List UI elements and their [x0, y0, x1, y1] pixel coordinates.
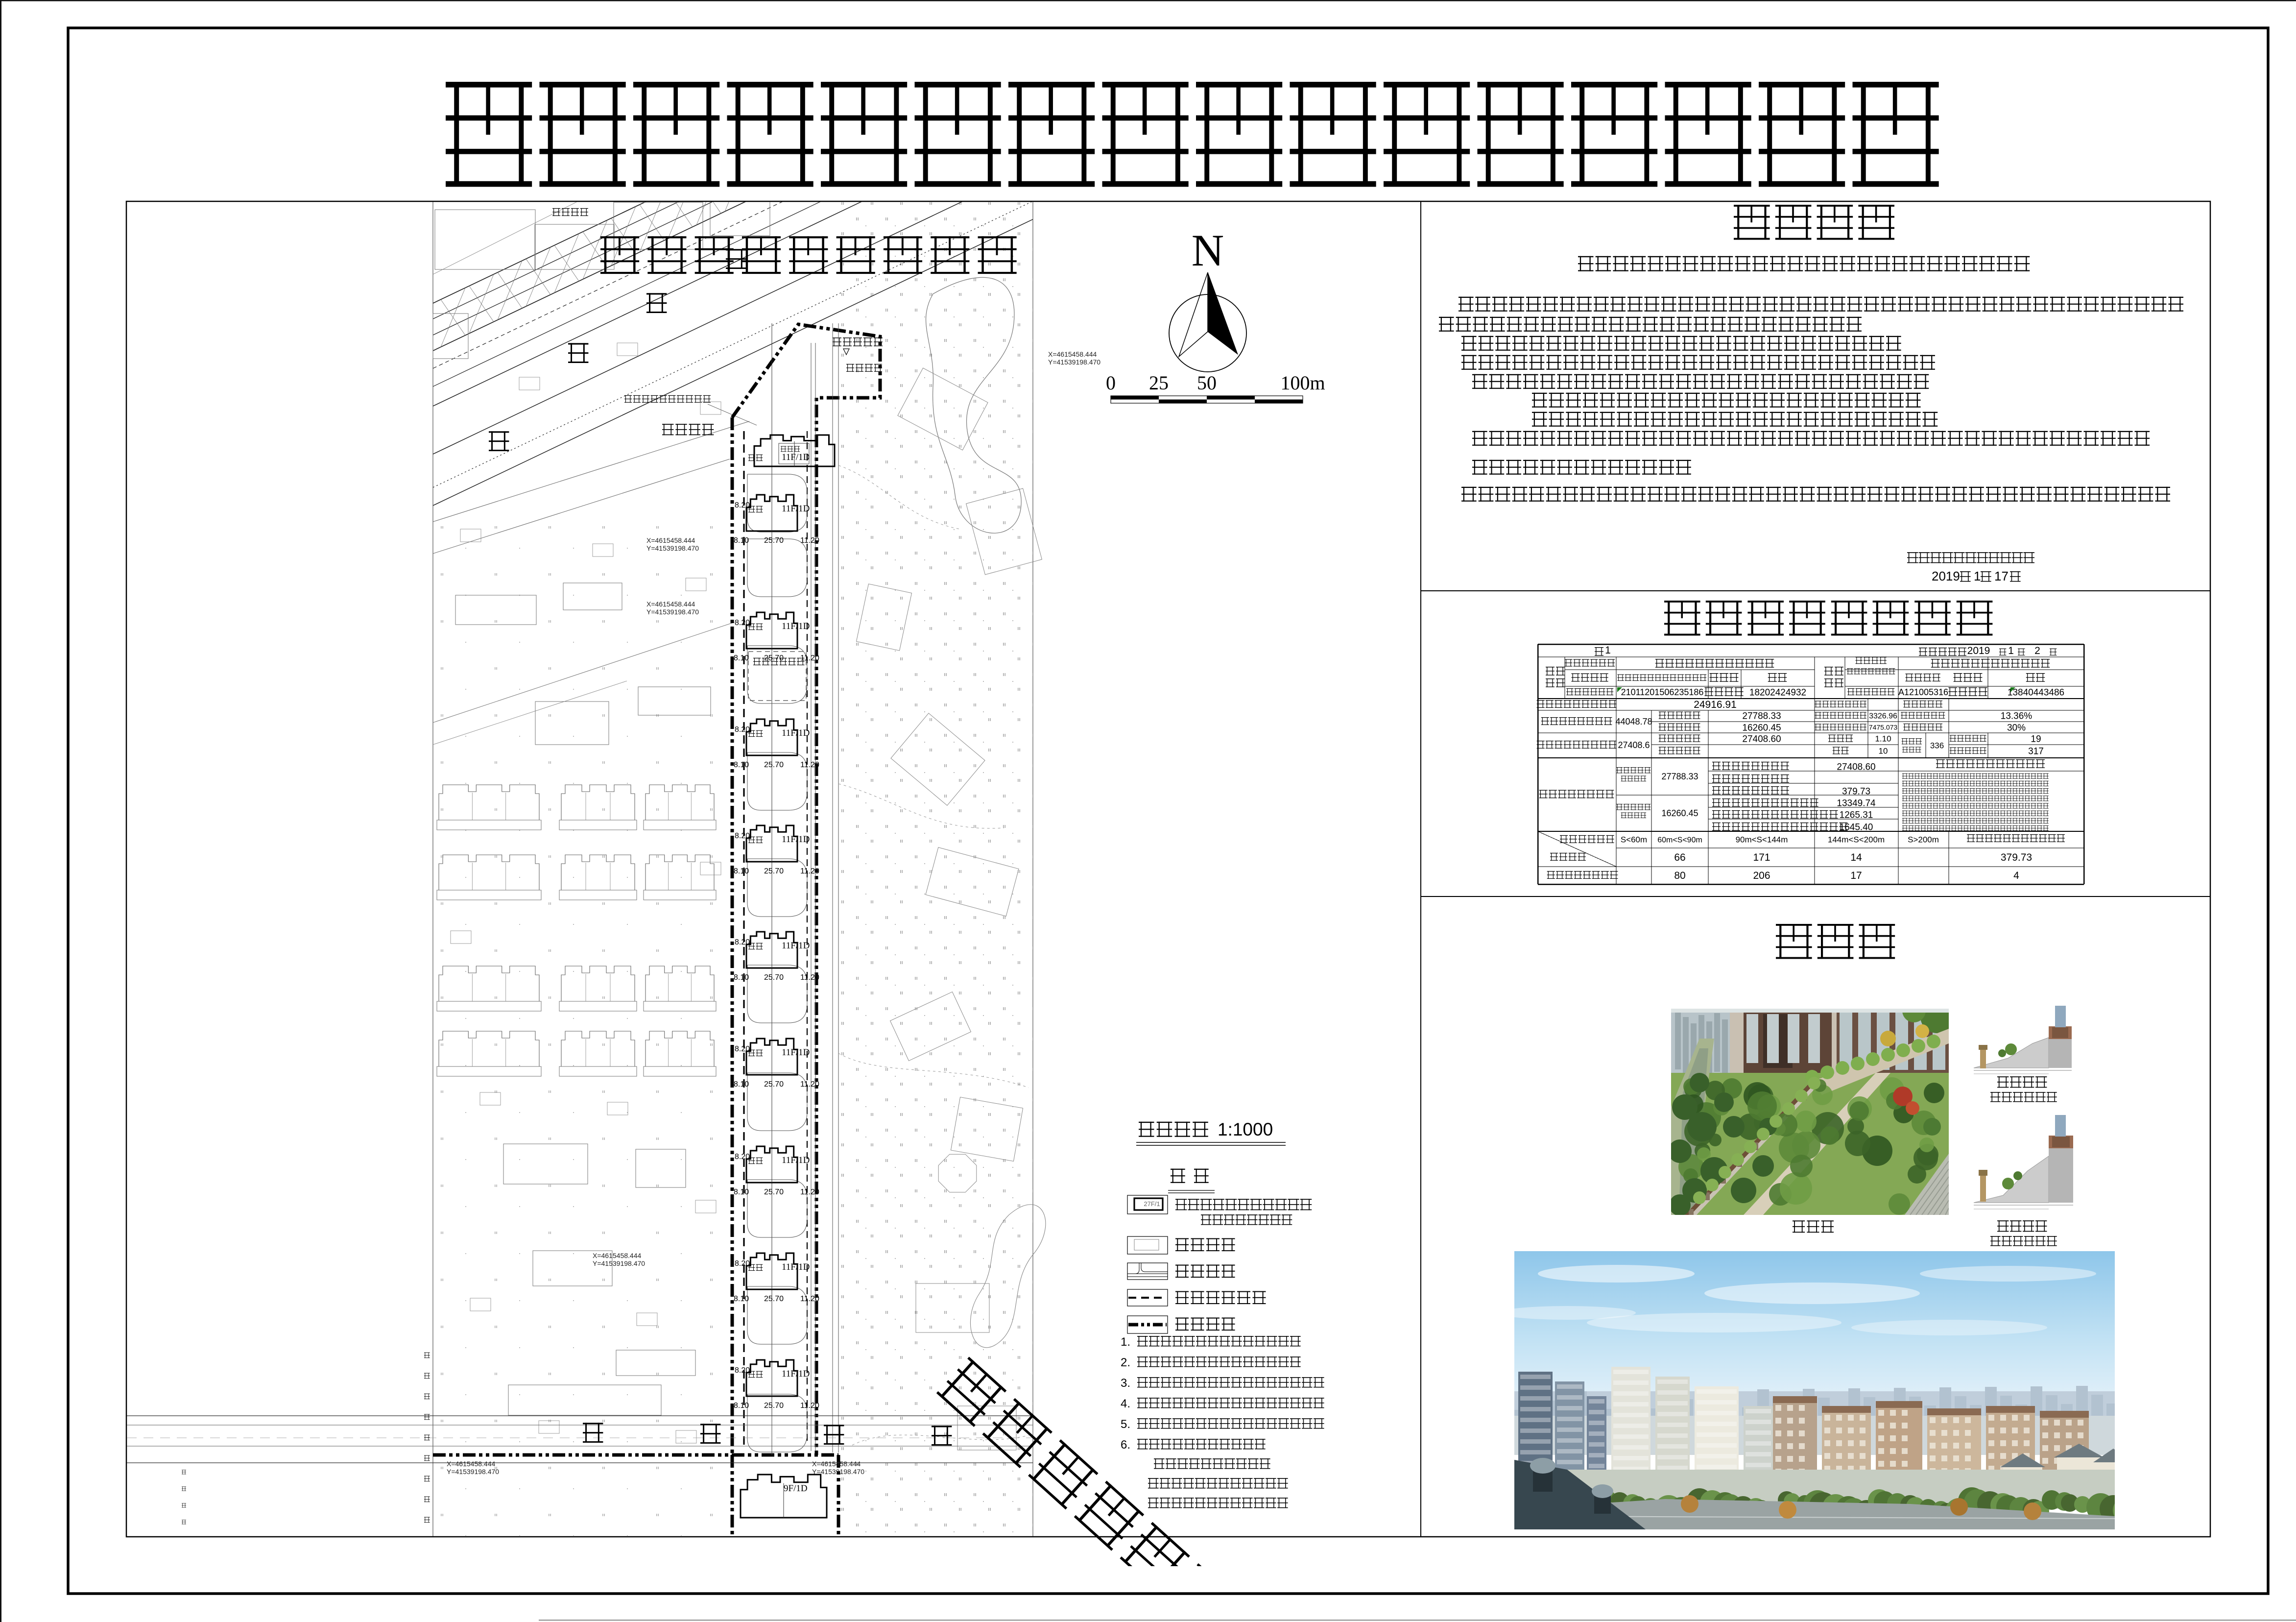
svg-text:A121005316: A121005316 [1898, 687, 1948, 697]
svg-text:44048.78: 44048.78 [1615, 717, 1652, 726]
svg-text:27408.60: 27408.60 [1742, 734, 1781, 744]
svg-text:3.: 3. [1121, 1377, 1130, 1390]
svg-text:336: 336 [1930, 741, 1944, 750]
svg-text:25.70: 25.70 [764, 867, 784, 875]
svg-text:11F/1D: 11F/1D [782, 1262, 810, 1272]
svg-text:66: 66 [1674, 852, 1685, 863]
svg-text:11.20: 11.20 [800, 1080, 819, 1089]
svg-text:25.70: 25.70 [764, 1402, 784, 1410]
svg-text:2: 2 [2034, 645, 2040, 656]
svg-text:16260.45: 16260.45 [1661, 808, 1698, 818]
svg-text:30%: 30% [2007, 723, 2026, 733]
svg-text:8.10: 8.10 [734, 1402, 749, 1410]
svg-text:7475.073: 7475.073 [1869, 724, 1898, 731]
svg-text:11F/1D: 11F/1D [782, 452, 810, 462]
svg-text:25.70: 25.70 [764, 654, 784, 662]
svg-text:8.10: 8.10 [734, 654, 749, 662]
svg-text:100m: 100m [1280, 372, 1325, 394]
svg-text:8.10: 8.10 [734, 1188, 749, 1196]
svg-text:8.20: 8.20 [735, 1366, 750, 1375]
svg-text:9F/1D: 9F/1D [784, 1483, 808, 1494]
svg-text:90m<S<144m: 90m<S<144m [1736, 835, 1788, 845]
svg-text:4.: 4. [1121, 1397, 1130, 1410]
svg-text:Y=41539198.470: Y=41539198.470 [1048, 358, 1100, 366]
svg-text:13.36%: 13.36% [2001, 711, 2033, 721]
svg-text:25.70: 25.70 [764, 536, 784, 545]
svg-text:14: 14 [1850, 852, 1862, 863]
svg-text:27408.6: 27408.6 [1618, 740, 1650, 750]
svg-text:3326.96: 3326.96 [1869, 712, 1897, 720]
svg-text:11F/1D: 11F/1D [782, 1047, 810, 1058]
svg-text:80: 80 [1674, 870, 1685, 881]
svg-text:8.10: 8.10 [734, 1080, 749, 1089]
svg-text:8.20: 8.20 [735, 1045, 750, 1053]
svg-text:8.20: 8.20 [735, 938, 750, 946]
svg-text:1.: 1. [1121, 1335, 1130, 1349]
svg-text:X=4615458.444: X=4615458.444 [593, 1252, 641, 1259]
svg-text:Y=41539198.470: Y=41539198.470 [593, 1259, 645, 1267]
svg-text:21011201506235186: 21011201506235186 [1621, 687, 1704, 697]
svg-text:10: 10 [1879, 747, 1888, 756]
svg-text:25.70: 25.70 [764, 973, 784, 982]
svg-text:11.20: 11.20 [800, 1188, 819, 1196]
svg-text:8.10: 8.10 [734, 867, 749, 875]
svg-text:6.: 6. [1121, 1438, 1130, 1452]
svg-text:13349.74: 13349.74 [1837, 798, 1876, 808]
svg-text:5.: 5. [1121, 1418, 1130, 1431]
svg-text:11F/1D: 11F/1D [782, 1155, 810, 1165]
svg-text:171: 171 [1753, 852, 1770, 863]
svg-text:11.20: 11.20 [800, 761, 819, 769]
svg-text:2019: 2019 [1967, 645, 1990, 656]
svg-text:S<60m: S<60m [1621, 835, 1647, 845]
svg-text:25: 25 [1149, 372, 1169, 394]
svg-text:11F/1D: 11F/1D [782, 834, 810, 845]
svg-text:8.20: 8.20 [735, 619, 750, 627]
svg-text:27408.60: 27408.60 [1837, 762, 1875, 772]
svg-text:17: 17 [1994, 569, 2009, 583]
svg-text:2.: 2. [1121, 1356, 1130, 1369]
svg-text:144m<S<200m: 144m<S<200m [1828, 835, 1885, 845]
svg-text:8.10: 8.10 [734, 536, 749, 545]
svg-text:17: 17 [1850, 870, 1862, 881]
svg-text:Y=41539198.470: Y=41539198.470 [646, 544, 699, 552]
svg-text:25.70: 25.70 [764, 761, 784, 769]
svg-text:11.20: 11.20 [800, 1295, 819, 1303]
svg-text:11F/1D: 11F/1D [782, 504, 810, 514]
svg-text:16260.45: 16260.45 [1742, 723, 1781, 733]
svg-text:X=4615458.444: X=4615458.444 [812, 1460, 861, 1468]
svg-text:1645.40: 1645.40 [1840, 822, 1873, 832]
svg-text:X=4615458.444: X=4615458.444 [646, 536, 695, 544]
svg-text:8.20: 8.20 [735, 726, 750, 734]
svg-text:X=4615458.444: X=4615458.444 [1048, 350, 1097, 358]
svg-text:0: 0 [1106, 372, 1116, 394]
svg-text:8.20: 8.20 [735, 1259, 750, 1268]
svg-text:18202424932: 18202424932 [1749, 687, 1806, 698]
svg-text:Y=41539198.470: Y=41539198.470 [447, 1468, 499, 1476]
svg-text:1: 1 [2008, 645, 2014, 656]
svg-text:25.70: 25.70 [764, 1080, 784, 1089]
svg-text:X=4615458.444: X=4615458.444 [447, 1460, 495, 1468]
svg-text:Y=41539198.470: Y=41539198.470 [812, 1468, 864, 1476]
svg-text:13840443486: 13840443486 [2008, 687, 2064, 698]
svg-text:8.20: 8.20 [735, 1153, 750, 1161]
svg-text:11F/1D: 11F/1D [782, 941, 810, 951]
svg-text:1.10: 1.10 [1875, 734, 1891, 744]
svg-text:50: 50 [1197, 372, 1217, 394]
svg-text:8.20: 8.20 [735, 501, 750, 509]
svg-text:1265.31: 1265.31 [1840, 810, 1873, 820]
svg-text:27788.33: 27788.33 [1661, 772, 1698, 781]
svg-text:Y=41539198.470: Y=41539198.470 [646, 608, 699, 616]
svg-text:8.10: 8.10 [734, 761, 749, 769]
svg-text:379.73: 379.73 [1842, 786, 1870, 797]
svg-text:8.10: 8.10 [734, 1295, 749, 1303]
svg-text:379.73: 379.73 [2001, 852, 2032, 863]
svg-text:11F/1D: 11F/1D [782, 728, 810, 738]
svg-text:27788.33: 27788.33 [1742, 711, 1781, 721]
svg-text:60m<S<90m: 60m<S<90m [1657, 836, 1702, 844]
svg-text:19: 19 [2031, 734, 2041, 744]
svg-text:11.20: 11.20 [800, 654, 819, 662]
svg-text:S>200m: S>200m [1908, 835, 1939, 845]
svg-text:11.20: 11.20 [800, 536, 819, 545]
svg-text:11F/1D: 11F/1D [782, 621, 810, 631]
svg-text:25.70: 25.70 [764, 1188, 784, 1196]
svg-text:11.20: 11.20 [800, 973, 819, 982]
svg-text:1:1000: 1:1000 [1218, 1119, 1273, 1139]
svg-text:206: 206 [1753, 870, 1770, 881]
svg-text:27F/1: 27F/1 [1144, 1200, 1160, 1208]
svg-text:11.20: 11.20 [800, 867, 819, 875]
svg-text:X=4615458.444: X=4615458.444 [646, 600, 695, 608]
svg-text:1: 1 [1605, 645, 1611, 656]
svg-text:11.20: 11.20 [800, 1402, 819, 1410]
svg-text:1: 1 [1974, 569, 1981, 583]
svg-text:8.10: 8.10 [734, 973, 749, 982]
svg-text:N: N [1192, 225, 1224, 275]
svg-text:8.20: 8.20 [735, 832, 750, 840]
svg-text:317: 317 [2028, 746, 2044, 756]
svg-text:25.70: 25.70 [764, 1295, 784, 1303]
svg-text:2019: 2019 [1932, 569, 1960, 583]
svg-text:4: 4 [2013, 870, 2019, 881]
svg-text:24916.91: 24916.91 [1694, 699, 1737, 710]
svg-text:11F/1D: 11F/1D [782, 1369, 810, 1379]
